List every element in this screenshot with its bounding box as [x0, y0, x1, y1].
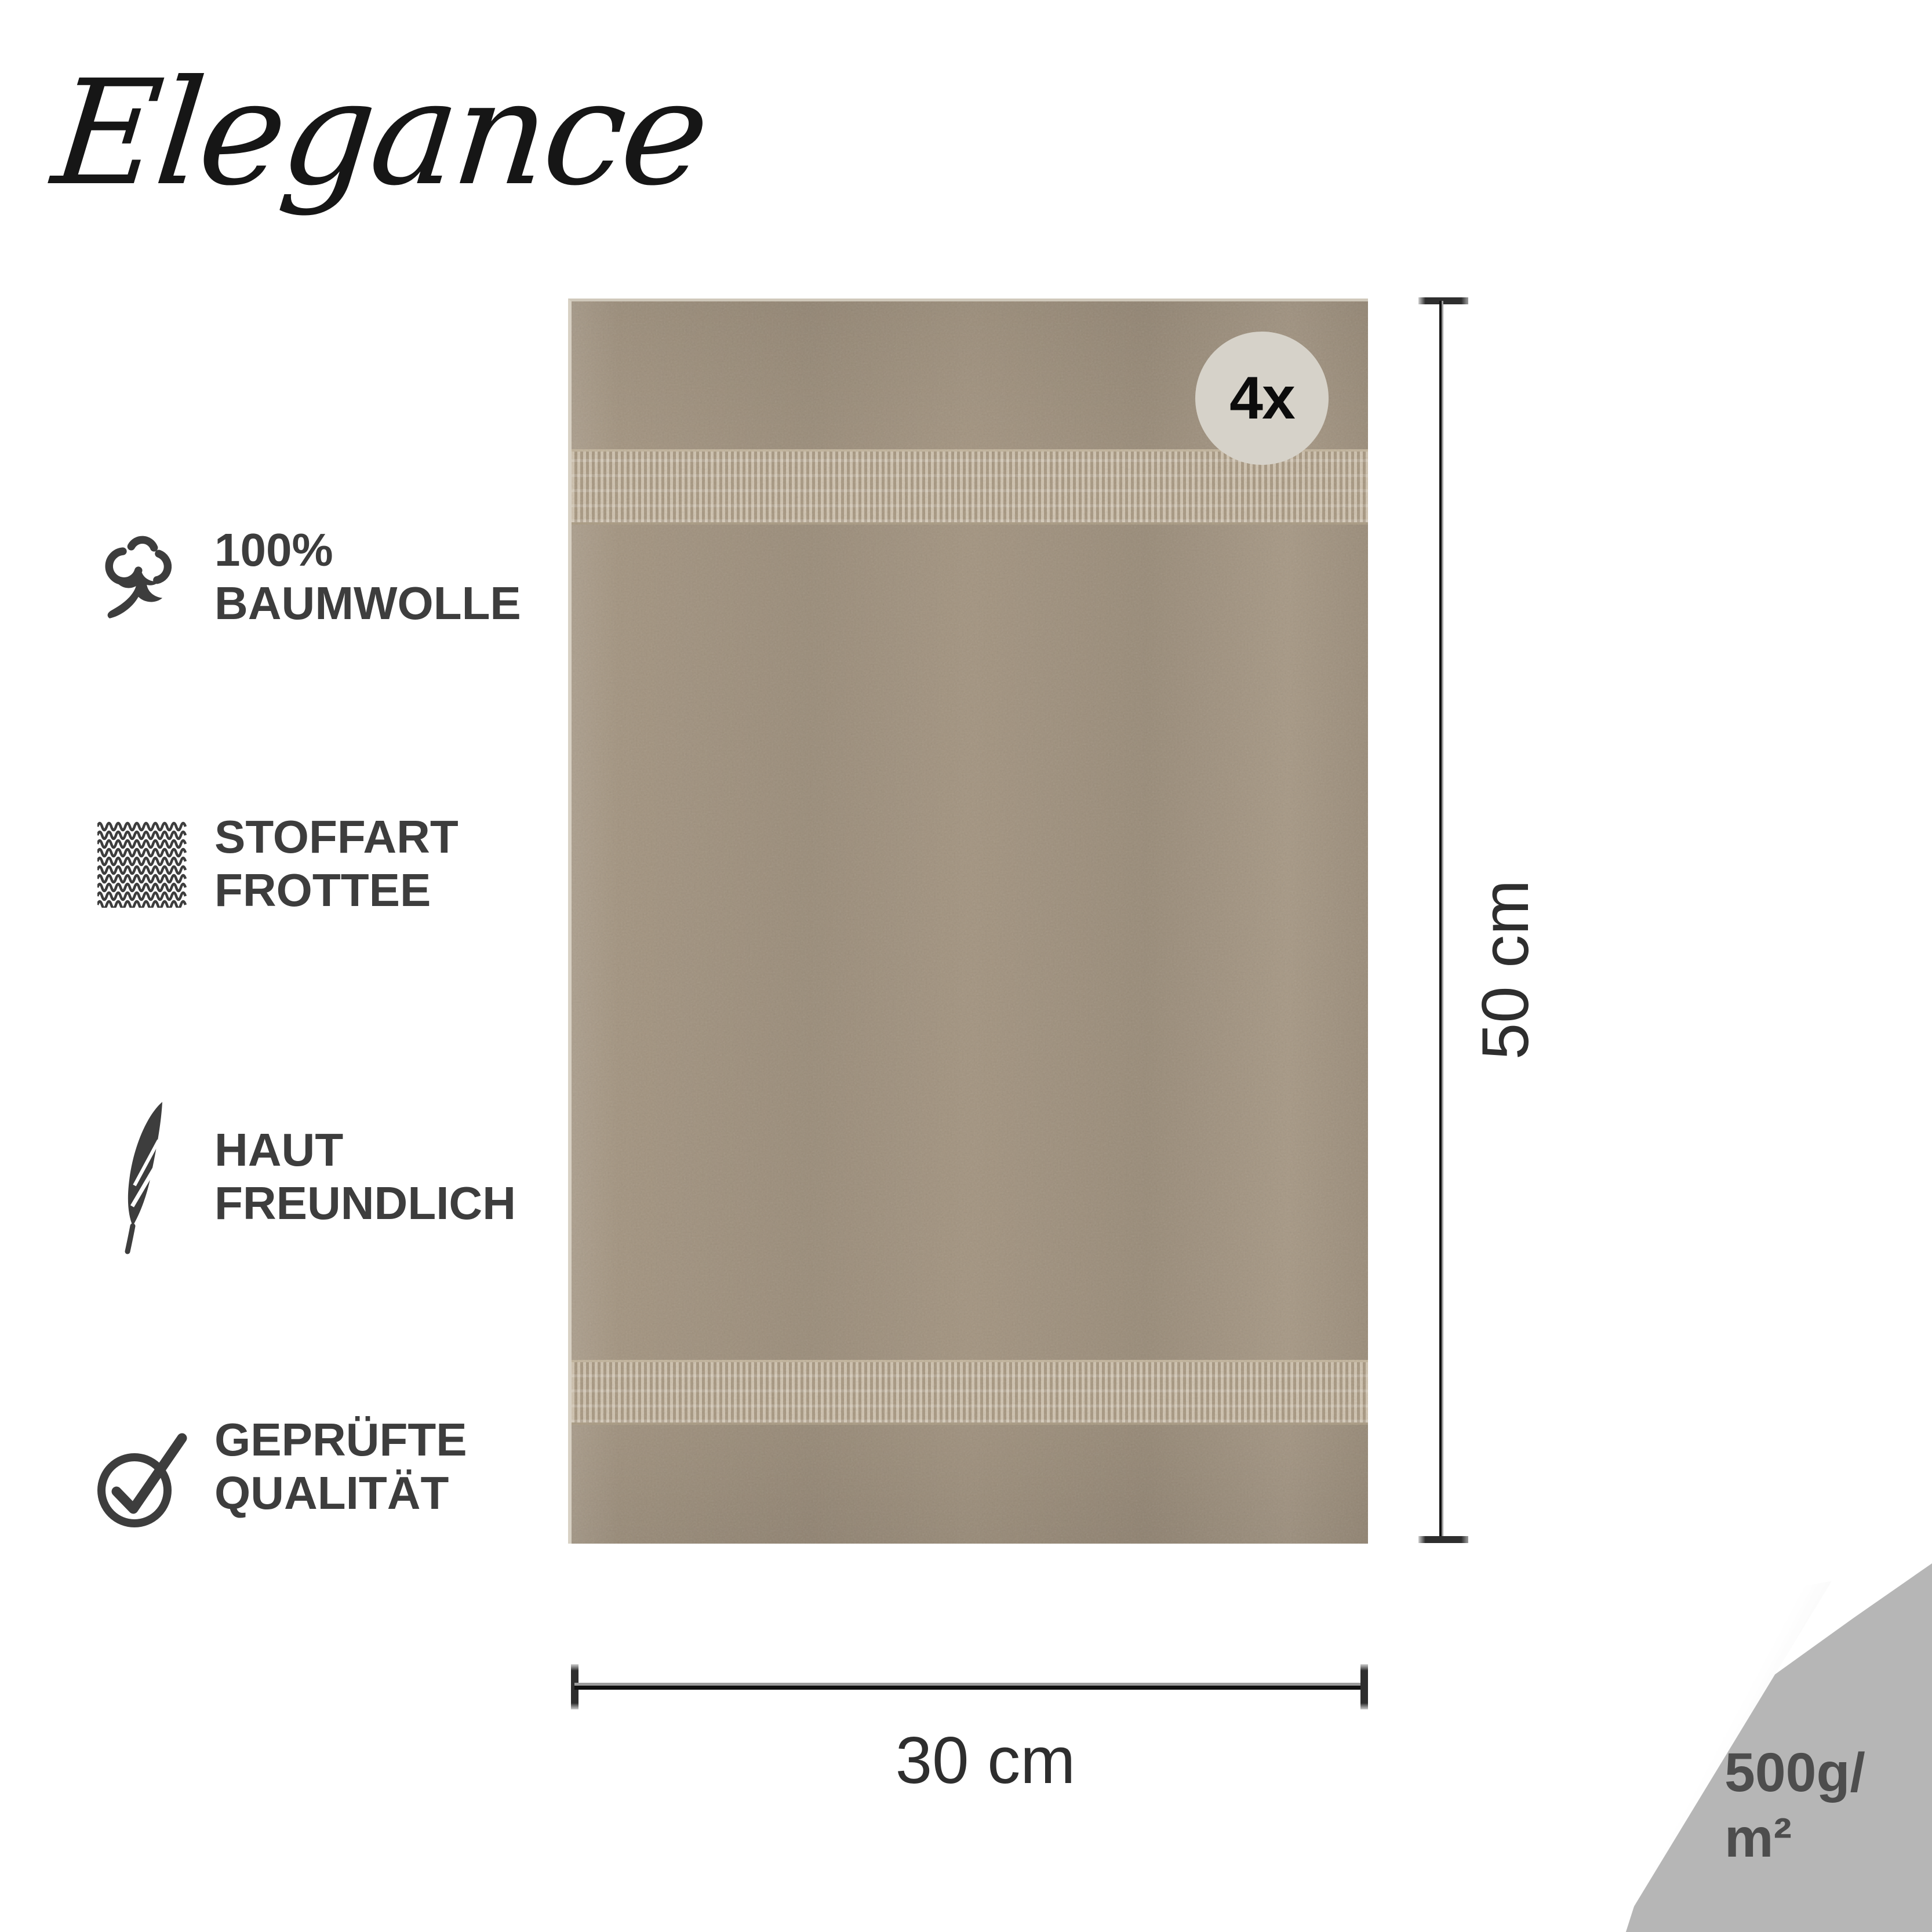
height-dimension-cap-bottom	[1418, 1536, 1468, 1543]
towel-image	[568, 299, 1368, 1544]
feather-icon	[70, 1098, 214, 1255]
feature-cotton-line1: 100%	[214, 523, 521, 577]
feature-skin-line1: HAUT	[214, 1123, 516, 1177]
fabric-weight-line1: 500g/	[1724, 1740, 1865, 1806]
width-dimension-line	[574, 1683, 1364, 1690]
fabric-weight-label: 500g/ m²	[1724, 1740, 1865, 1871]
feature-quality-line2: QUALITÄT	[214, 1467, 467, 1520]
feature-skin-friendly: HAUT FREUNDLICH	[70, 1090, 568, 1264]
check-circle-icon	[70, 1399, 214, 1535]
feature-quality-line1: GEPRÜFTE	[214, 1413, 467, 1467]
feature-skin-line2: FREUNDLICH	[214, 1177, 516, 1230]
height-dimension-line	[1439, 301, 1443, 1540]
towel-border-band-bottom	[572, 1360, 1368, 1425]
feature-fabric-line2: FROTTEE	[214, 864, 459, 917]
feature-cotton: 100% BAUMWOLLE	[70, 516, 568, 638]
fabric-weight-line2: m²	[1724, 1806, 1865, 1871]
feature-quality: GEPRÜFTE QUALITÄT	[70, 1385, 568, 1548]
product-infographic: Elegance 100% BAUMWOLLE	[0, 0, 1932, 1932]
width-dimension-cap-right	[1360, 1664, 1368, 1709]
height-dimension-label: 50 cm	[1471, 854, 1541, 1086]
width-dimension-label: 30 cm	[812, 1726, 1159, 1796]
feature-fabric-line1: STOFFART	[214, 810, 459, 864]
fabric-texture-icon	[70, 820, 214, 908]
cotton-flower-icon	[70, 532, 214, 622]
quantity-badge: 4x	[1195, 332, 1329, 465]
brand-logo: Elegance	[48, 61, 712, 206]
feature-fabric-type: STOFFART FROTTEE	[70, 803, 568, 925]
height-dimension-cap-top	[1418, 297, 1468, 304]
feature-cotton-line2: BAUMWOLLE	[214, 577, 521, 630]
